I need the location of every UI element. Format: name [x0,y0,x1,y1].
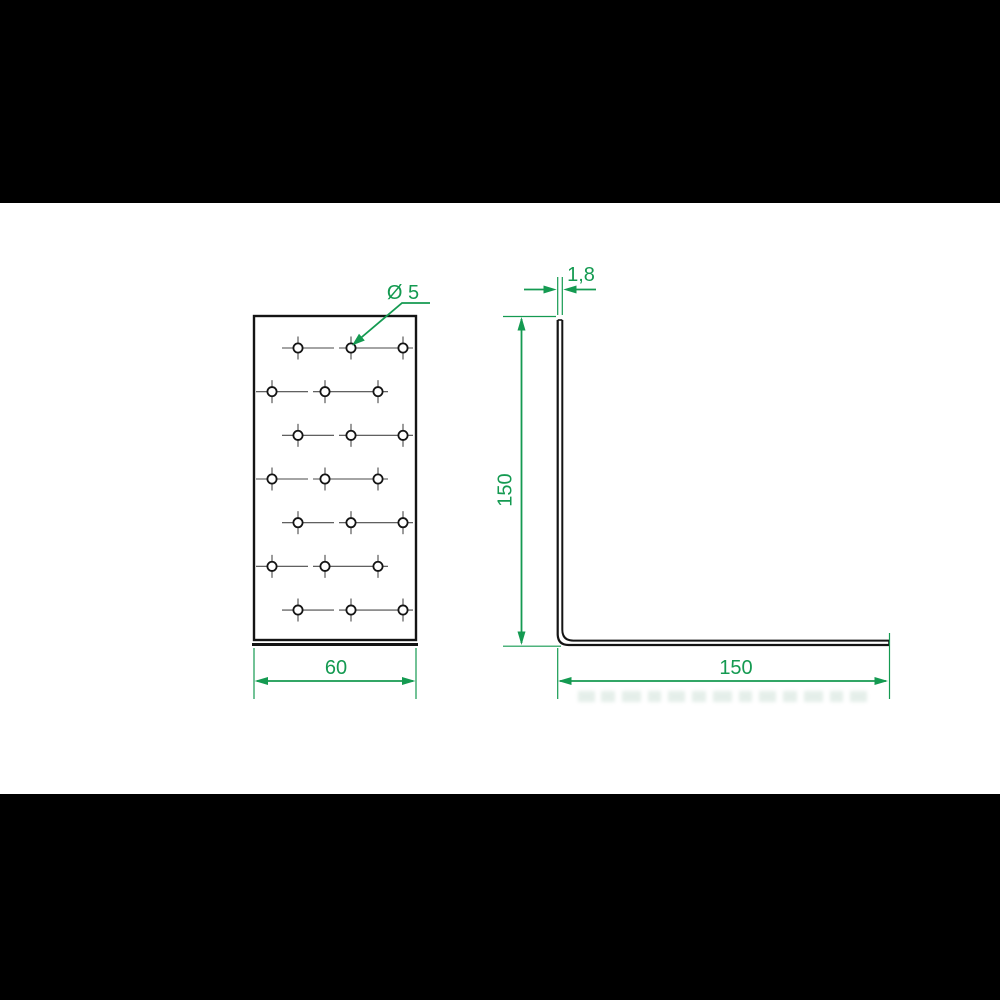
hole [346,518,355,527]
hole [320,562,329,571]
arrowhead-left [558,677,572,685]
hole [293,343,302,352]
thickness-dimension: 1,8 [524,264,596,315]
arrowhead-left [563,286,576,294]
hole [398,605,407,614]
side-view: 1,8 150 150 [495,264,890,699]
arrowhead-up [518,317,526,331]
length-dimension: 150 [558,633,890,699]
hole [267,474,276,483]
top-letterbox-band [0,0,1000,203]
hole [293,431,302,440]
hole [320,474,329,483]
plate-outline [254,316,416,640]
angle-outer-contour [558,320,889,645]
hole [293,518,302,527]
arrowhead-right [544,286,557,294]
bottom-letterbox-band [0,794,1000,1000]
width-label: 60 [325,657,347,679]
front-view: Ø 5 60 [252,282,430,699]
height-dimension: 150 [495,317,562,647]
hole [373,562,382,571]
hole [293,605,302,614]
drawing-canvas: Ø 5 60 1,8 [0,203,1000,794]
hole [398,431,407,440]
arrowhead-right [402,677,416,685]
arrowhead-down [518,632,526,646]
height-label: 150 [495,473,517,506]
arrowhead-left [255,677,269,685]
technical-drawing: Ø 5 60 1,8 [0,203,1000,794]
hole [398,518,407,527]
hole [346,605,355,614]
hole [373,387,382,396]
arrowhead-right [875,677,889,685]
width-dimension: 60 [254,648,416,699]
hole [398,343,407,352]
hole [373,474,382,483]
hole-diameter-label: Ø 5 [387,282,419,304]
hole [320,387,329,396]
watermark-smudge [578,691,867,702]
angle-inner-contour [562,320,889,641]
thickness-label: 1,8 [567,264,595,286]
hole [346,343,355,352]
hole [267,387,276,396]
hole [346,431,355,440]
hole [267,562,276,571]
length-label: 150 [719,657,752,679]
